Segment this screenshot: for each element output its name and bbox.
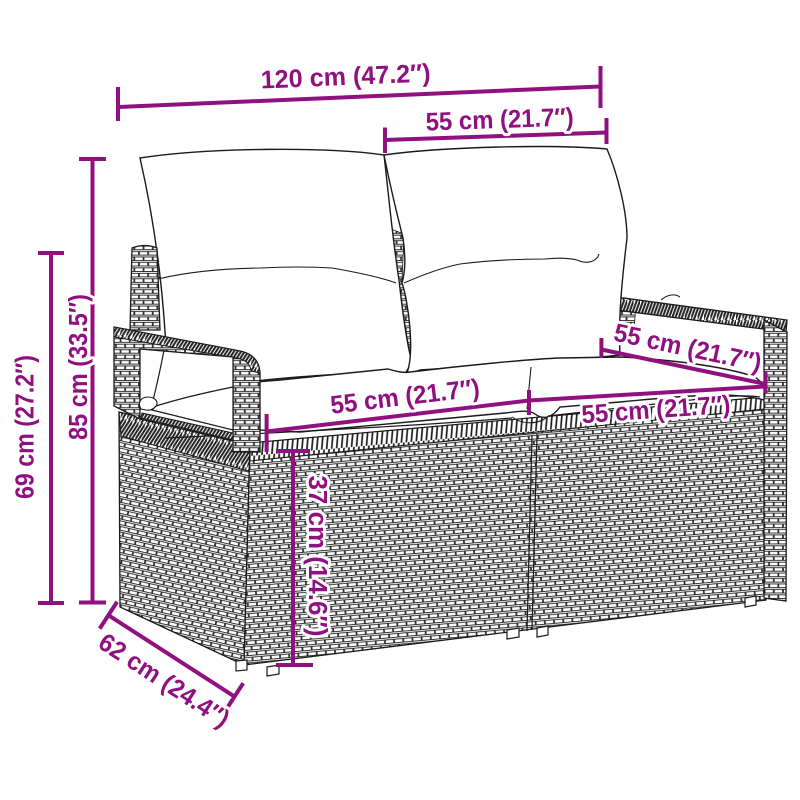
svg-text:37 cm (14.6″): 37 cm (14.6″)	[303, 476, 331, 637]
svg-text:85 cm (33.5″): 85 cm (33.5″)	[65, 294, 93, 440]
svg-text:69 cm (27.2″): 69 cm (27.2″)	[12, 355, 40, 499]
svg-text:55 cm (21.7″): 55 cm (21.7″)	[425, 103, 574, 136]
